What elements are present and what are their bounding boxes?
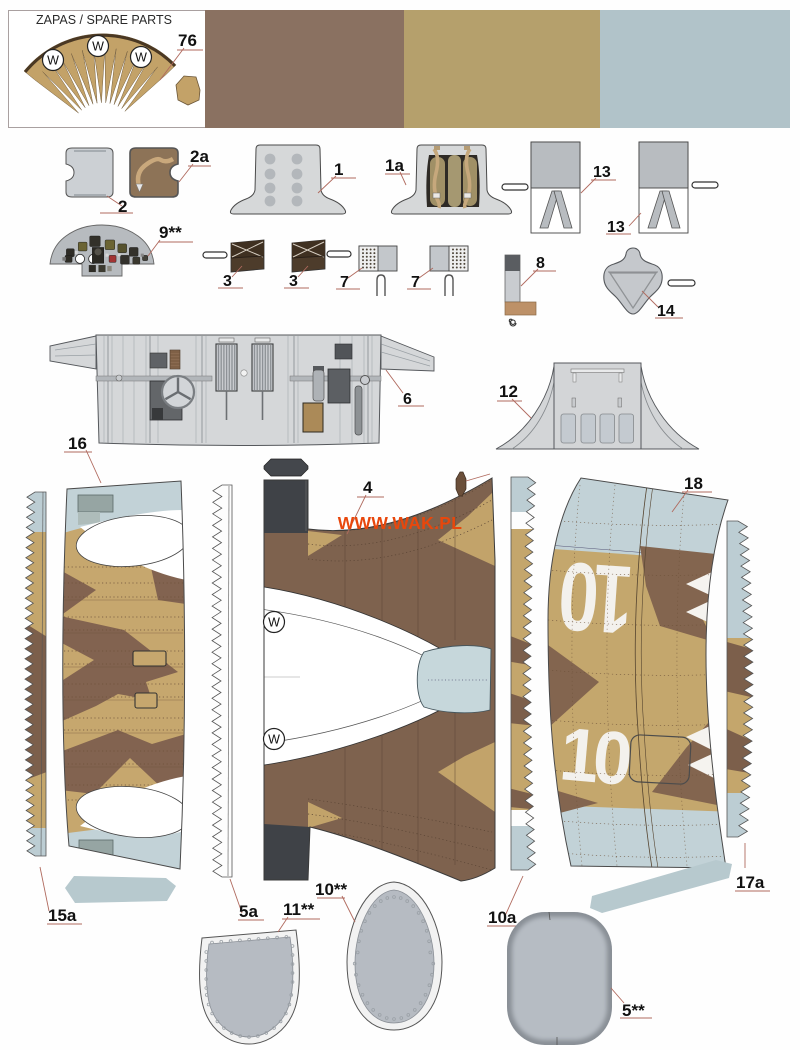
svg-text:5**: 5** <box>622 1001 645 1020</box>
svg-text:3: 3 <box>289 273 298 290</box>
svg-text:17a: 17a <box>736 873 765 892</box>
svg-text:10a: 10a <box>488 908 517 927</box>
svg-text:13: 13 <box>607 219 625 236</box>
svg-text:1: 1 <box>334 160 343 179</box>
svg-text:WWW.WAK.PL: WWW.WAK.PL <box>338 513 463 533</box>
svg-text:2: 2 <box>118 197 127 216</box>
svg-text:9**: 9** <box>159 223 182 242</box>
svg-text:10: 10 <box>558 541 636 654</box>
svg-text:W: W <box>47 54 59 68</box>
svg-text:76: 76 <box>178 31 197 50</box>
svg-text:W: W <box>92 40 104 54</box>
svg-text:10**: 10** <box>315 880 348 899</box>
svg-text:1a: 1a <box>385 156 404 175</box>
svg-text:13: 13 <box>593 164 611 181</box>
svg-text:8: 8 <box>536 255 545 272</box>
svg-text:11**: 11** <box>283 900 315 919</box>
svg-text:15a: 15a <box>48 906 77 925</box>
svg-text:2a: 2a <box>190 147 209 166</box>
svg-text:W: W <box>268 733 280 747</box>
svg-text:ZAPAS / SPARE PARTS: ZAPAS / SPARE PARTS <box>36 13 172 27</box>
svg-text:14: 14 <box>657 303 675 320</box>
svg-text:18: 18 <box>684 474 703 493</box>
svg-text:5a: 5a <box>239 902 258 921</box>
svg-text:6: 6 <box>403 391 412 408</box>
svg-text:7: 7 <box>340 274 349 291</box>
svg-text:7: 7 <box>411 274 420 291</box>
svg-text:W: W <box>268 616 280 630</box>
svg-text:W: W <box>135 51 147 65</box>
svg-text:3: 3 <box>223 273 232 290</box>
svg-text:4: 4 <box>363 478 373 497</box>
svg-text:12: 12 <box>499 382 518 401</box>
svg-text:10: 10 <box>557 712 634 802</box>
svg-text:16: 16 <box>68 434 87 453</box>
